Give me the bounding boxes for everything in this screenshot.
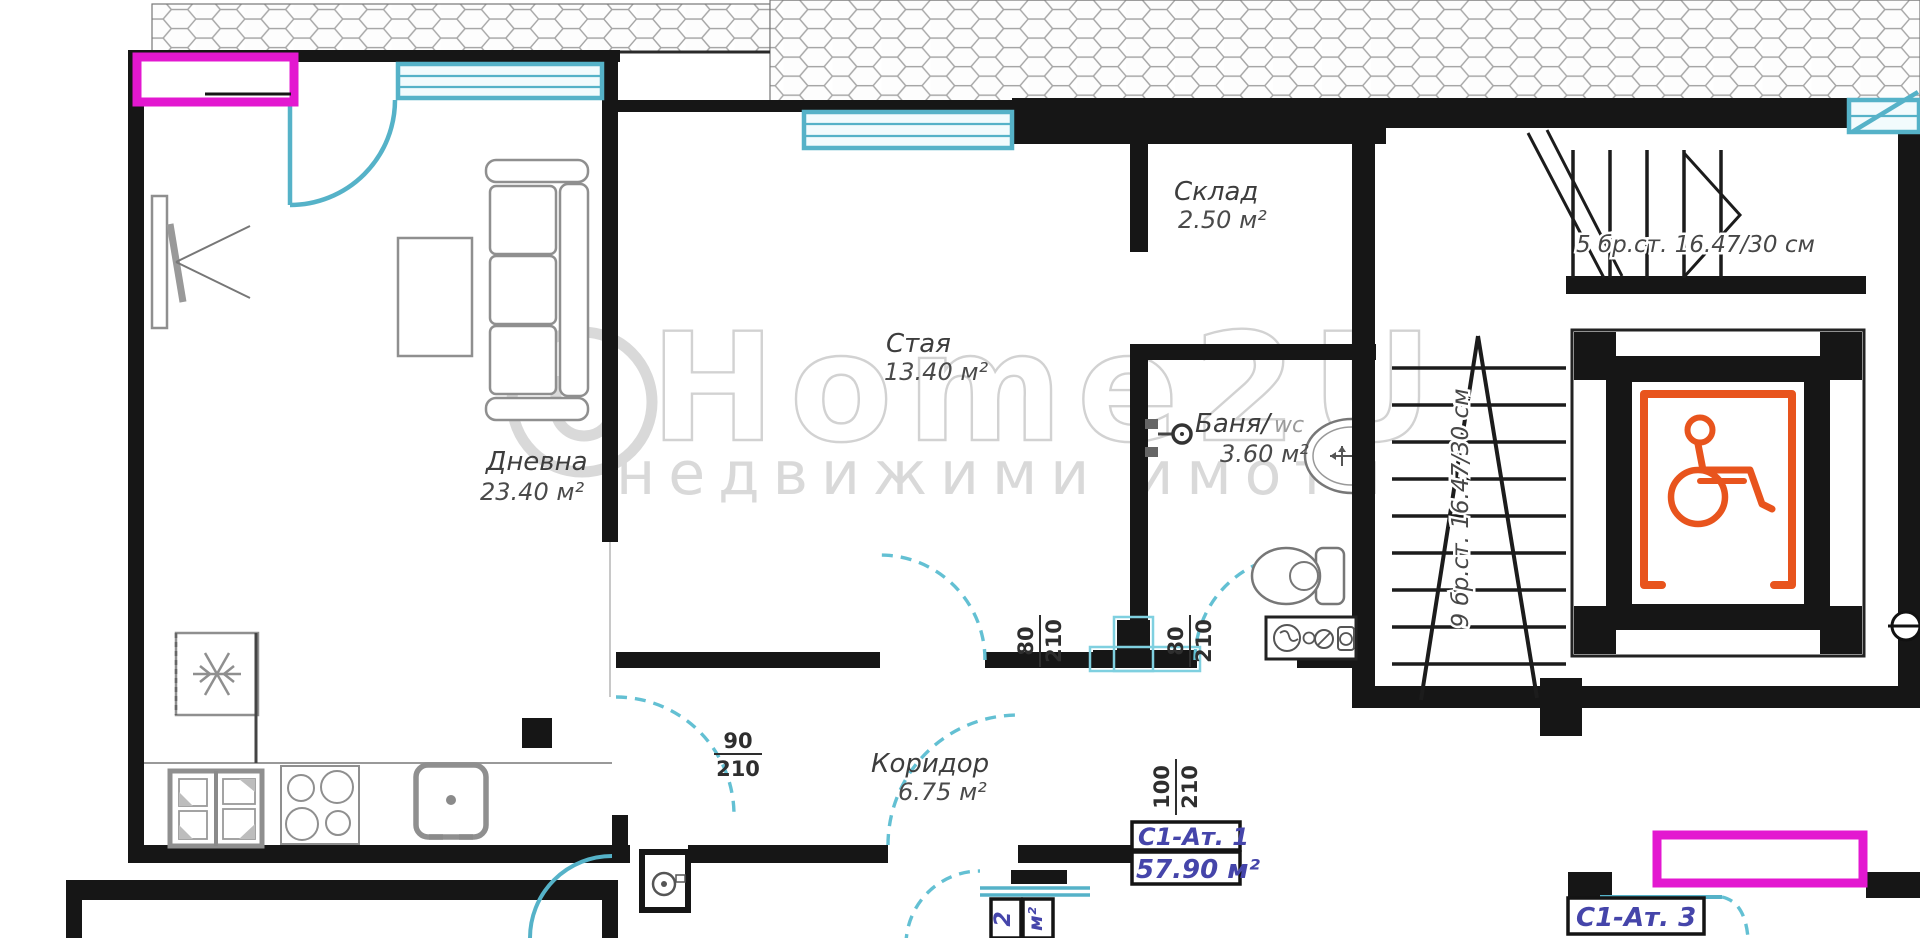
- sofa: [486, 160, 588, 420]
- svg-text:210: 210: [1178, 765, 1202, 809]
- svg-text:100: 100: [1150, 765, 1174, 809]
- dishwasher: [416, 765, 486, 837]
- room-area-staya: 13.40 м²: [884, 358, 988, 386]
- window-livingroom: [398, 64, 602, 98]
- door-arc-livingroom: [616, 697, 734, 815]
- window-staya: [804, 112, 1012, 148]
- coffee-table: [398, 238, 472, 356]
- room-area-sklad: 2.50 м²: [1178, 206, 1267, 234]
- stair-label-lower: 9 бр.ст. 16.47/30 см: [1448, 389, 1474, 628]
- window-top-right: [1849, 92, 1919, 132]
- entrance-balcony-door: [290, 100, 395, 205]
- svg-text:210: 210: [1042, 619, 1066, 663]
- floor-plan-canvas: Home2U недвижими имоти: [0, 0, 1920, 938]
- magenta-box-bottom-right: [1657, 835, 1863, 883]
- fridge: [176, 633, 258, 715]
- hob: [281, 766, 359, 844]
- tv-unit: [152, 196, 250, 328]
- apartment3-code: С1-Ат. 3: [1576, 903, 1696, 933]
- door-arc-staya: [880, 555, 985, 660]
- svg-text:210: 210: [1192, 619, 1216, 663]
- vent-shaft: [642, 852, 688, 910]
- door-size-entrance: 100 210: [1150, 759, 1202, 815]
- room-label-bath-wc: wc: [1274, 413, 1304, 438]
- room-area-bath: 3.60 м²: [1220, 440, 1309, 468]
- room-label-corridor: Коридор: [871, 749, 989, 779]
- apartment-area: 57.90 м²: [1136, 855, 1261, 885]
- svg-text:80: 80: [1014, 626, 1038, 655]
- stair-label-upper: 5 бр.ст. 16.47/30 см: [1576, 232, 1815, 258]
- room-area-corridor: 6.75 м²: [898, 778, 987, 806]
- section-marker-icon: [1888, 612, 1920, 640]
- room-label-livingroom: Дневна: [485, 447, 588, 477]
- svg-text:90: 90: [723, 729, 752, 753]
- room-area-livingroom: 23.40 м²: [480, 478, 584, 506]
- furniture: [144, 160, 1356, 910]
- washing-machine: [1266, 617, 1356, 659]
- room-label-bath: Баня/: [1195, 409, 1273, 439]
- kitchen-sink: [170, 771, 262, 846]
- door-arc-lower-apartment: [906, 871, 980, 938]
- toilet: [1252, 548, 1344, 604]
- apartment-code: С1-Ат. 1: [1138, 823, 1249, 851]
- room-label-sklad: Склад: [1174, 177, 1258, 207]
- elevator: [1572, 330, 1920, 656]
- watermark: Home2U недвижими имоти: [512, 302, 1447, 509]
- svg-text:80: 80: [1164, 626, 1188, 655]
- room-label-staya: Стая: [886, 329, 951, 359]
- lower-window-strip: [980, 888, 1090, 895]
- apartment2-area-part: м²: [1025, 906, 1047, 931]
- svg-text:210: 210: [716, 757, 760, 781]
- floor-plan-page: Home2U недвижими имоти: [0, 0, 1920, 938]
- apartment2-code-part: 2: [991, 911, 1016, 926]
- door-size-livingroom: 90 210: [714, 729, 762, 781]
